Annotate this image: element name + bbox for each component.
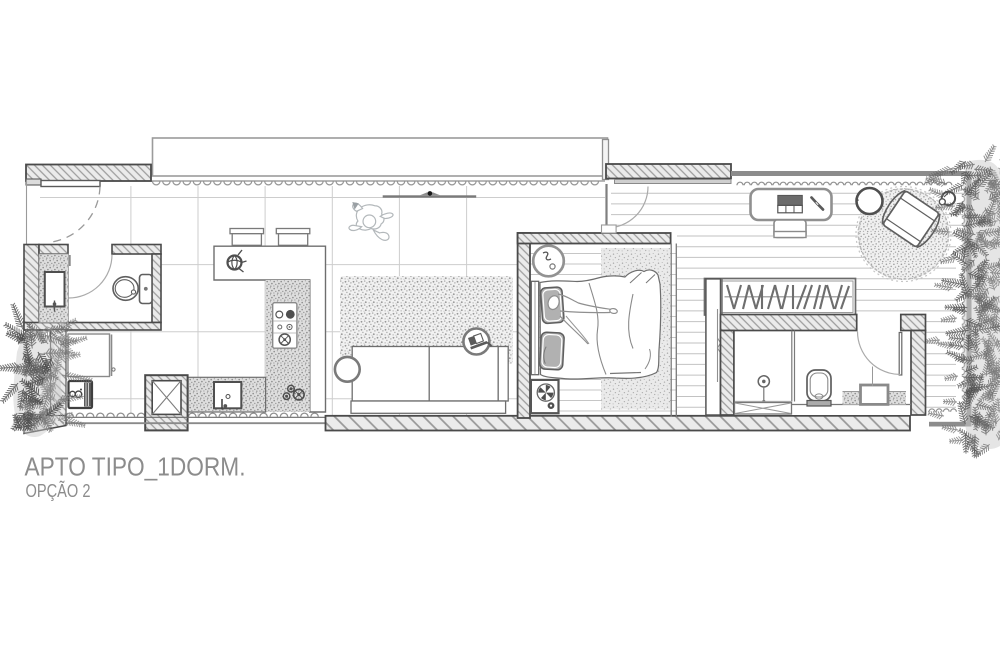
svg-text:OPÇÃO 2: OPÇÃO 2 — [26, 480, 91, 501]
svg-text:APTO TIPO_1DORM.: APTO TIPO_1DORM. — [25, 452, 246, 482]
